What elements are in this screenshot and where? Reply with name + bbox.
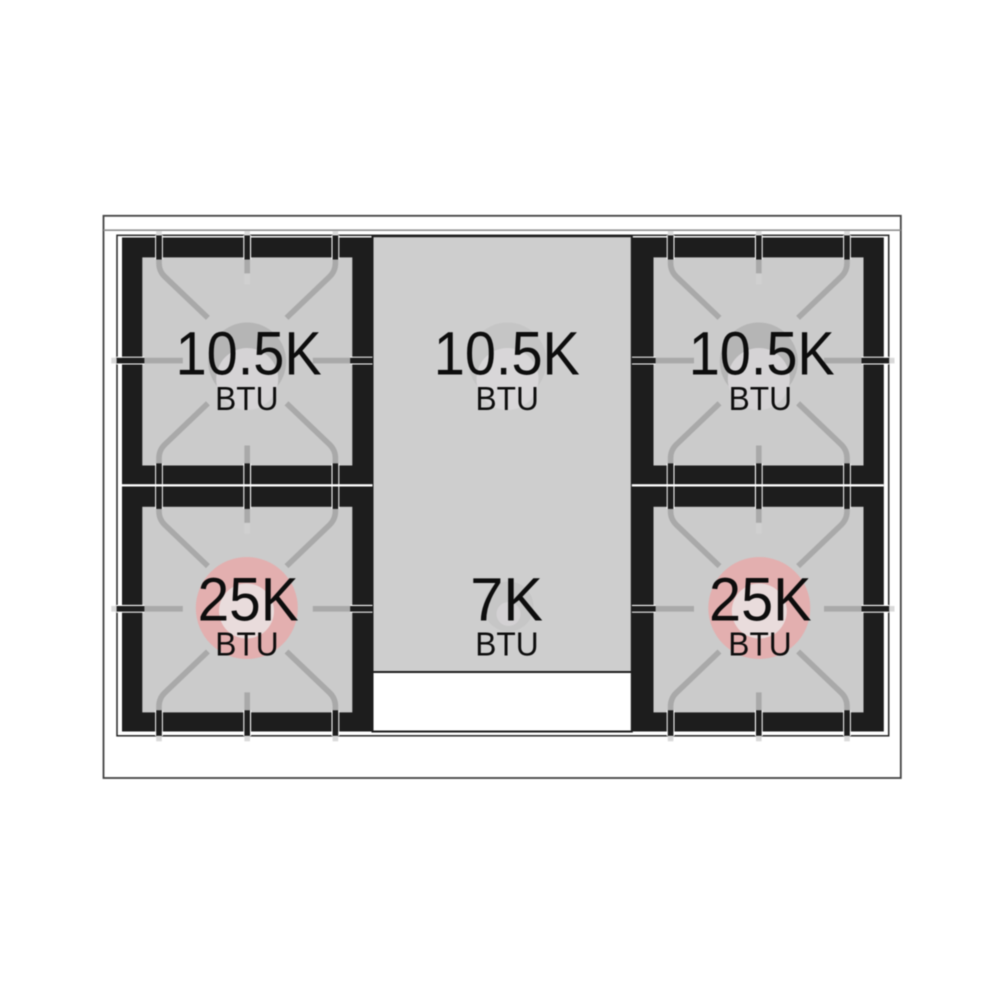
svg-text:BTU: BTU (215, 626, 278, 663)
svg-text:25K: 25K (198, 566, 299, 634)
svg-text:10.5K: 10.5K (176, 320, 322, 388)
svg-text:25K: 25K (709, 566, 812, 634)
svg-text:BTU: BTU (476, 380, 539, 417)
svg-text:7K: 7K (470, 566, 543, 634)
svg-text:BTU: BTU (475, 626, 538, 663)
svg-text:BTU: BTU (729, 380, 792, 417)
svg-text:10.5K: 10.5K (689, 320, 835, 388)
svg-text:10.5K: 10.5K (434, 320, 580, 388)
svg-text:BTU: BTU (728, 626, 791, 663)
svg-text:BTU: BTU (215, 380, 278, 417)
